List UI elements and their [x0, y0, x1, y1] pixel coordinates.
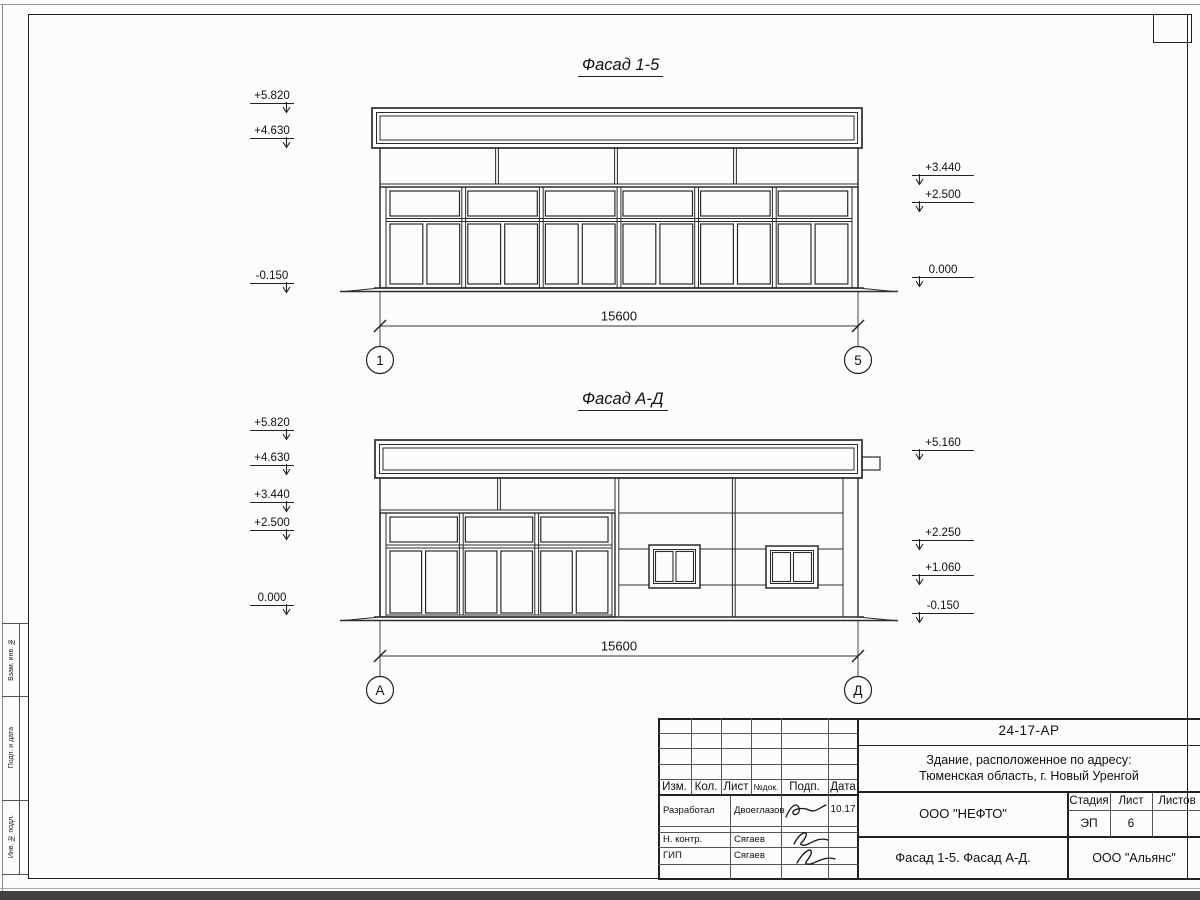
dimension-value: 15600: [601, 309, 637, 324]
sheet-number: 6: [1110, 810, 1152, 837]
facade-ad-title: Фасад А-Д: [578, 390, 668, 411]
elevation-mark: +3.440: [250, 488, 294, 503]
elevation-arrow-icon: [280, 137, 293, 150]
doc-number: 24-17-АР: [858, 718, 1200, 745]
elevation-arrow-icon: [280, 464, 293, 477]
margin-label-text: Взам. инв. №: [8, 638, 15, 681]
elevation-arrow-icon: [280, 102, 293, 115]
sheet-edge-bottom-line: [0, 888, 1200, 889]
axis-label-1: 1: [376, 353, 384, 368]
ground-line: [340, 288, 898, 292]
object-title-line2: Тюменская область, г. Новый Уренгой: [919, 769, 1139, 785]
elevation-mark: 0.000: [250, 591, 294, 606]
axis-label-d: Д: [853, 683, 862, 698]
drawing-title: Фасад 1-5. Фасад А-Д.: [858, 837, 1068, 880]
dimension: [367, 621, 872, 704]
elevation-mark: +1.060: [912, 561, 974, 576]
sheet-edge-top: [0, 4, 1200, 5]
elevation-mark: 0.000: [912, 263, 974, 278]
facade-1-5-title: Фасад 1-5: [578, 56, 663, 77]
margin-label-podp: Подп. и дата: [3, 696, 19, 800]
sign-band: [375, 440, 880, 478]
sheet-label: Лист: [1110, 792, 1152, 810]
elevation-arrow-icon: [913, 574, 926, 587]
dimension: [367, 292, 872, 374]
sign-band: [372, 108, 862, 148]
axis-label-a: А: [375, 683, 384, 698]
elevation-mark: +2.500: [912, 188, 974, 203]
curtain-wall: [380, 187, 858, 288]
elevation-arrow-icon: [280, 501, 293, 514]
elevation-arrow-icon: [913, 449, 926, 462]
name-syagaev-1: Сягаев: [731, 832, 784, 847]
elevation-arrow-icon: [913, 174, 926, 187]
role-razrabotal: Разработал: [660, 795, 731, 826]
sign-band-bracket: [862, 457, 880, 470]
window-2: [766, 546, 818, 588]
elevation-arrow-icon: [280, 529, 293, 542]
name-syagaev-2: Сягаев: [731, 847, 784, 864]
margin-label-text: Подп. и дата: [8, 727, 15, 768]
margin-label-vzam: Взам. инв. №: [3, 623, 19, 696]
elevation-mark: +4.630: [250, 451, 294, 466]
date-value: 10.17: [828, 795, 858, 826]
dimension-value: 15600: [601, 639, 637, 654]
role-gip: ГИП: [660, 847, 731, 864]
elevation-mark: +5.820: [250, 89, 294, 104]
elevation-mark: +4.630: [250, 124, 294, 139]
sheets-label: Листов: [1152, 792, 1200, 810]
fascia-band: [380, 148, 858, 187]
elevation-arrow-icon: [280, 429, 293, 442]
elevation-mark: +5.820: [250, 416, 294, 431]
drawing-sheet: Взам. инв. № Подп. и дата Инв. № подл. Ф…: [0, 0, 1200, 900]
col-podp: Подп.: [781, 779, 828, 795]
elevation-mark: +2.250: [912, 526, 974, 541]
elevation-mark: -0.150: [250, 269, 294, 284]
org-name: ООО "НЕФТО": [858, 792, 1068, 837]
stage-label: Стадия: [1068, 792, 1110, 810]
col-izm: Изм.: [658, 779, 691, 795]
margin-strip-line: [2, 874, 28, 875]
margin-label-inv: Инв. № подл.: [3, 800, 19, 874]
signature-icon: [793, 845, 839, 869]
corner-stamp-box: [1153, 14, 1192, 43]
paper-edge: [0, 891, 1200, 900]
elevation-arrow-icon: [913, 201, 926, 214]
facade-ad-drawing: 15600 А Д: [330, 430, 910, 720]
signature-icon: [783, 799, 829, 825]
elevation-arrow-icon: [913, 612, 926, 625]
elevation-mark: +3.440: [912, 161, 974, 176]
role-nkontr: Н. контр.: [660, 832, 731, 847]
curtain-wall: [380, 513, 615, 617]
col-list: Лист: [721, 779, 751, 795]
object-title-line1: Здание, расположенное по адресу:: [919, 753, 1139, 769]
elevation-arrow-icon: [913, 276, 926, 289]
contractor-name: ООО "Альянс": [1068, 837, 1200, 880]
elevation-mark: +5.160: [912, 436, 974, 451]
ground-line: [340, 617, 898, 621]
axis-label-5: 5: [854, 353, 862, 368]
margin-strip-line: [19, 623, 20, 874]
window-1: [649, 545, 700, 588]
col-data: Дата: [828, 779, 858, 795]
elevation-mark: +2.500: [250, 516, 294, 531]
elevation-arrow-icon: [280, 604, 293, 617]
facade-1-5-drawing: 15600 1 5: [330, 100, 910, 390]
col-ndok: №док.: [751, 779, 781, 795]
margin-label-text: Инв. № подл.: [8, 815, 15, 858]
elevation-arrow-icon: [913, 539, 926, 552]
col-kol: Кол.: [691, 779, 721, 795]
name-dvoeglazov: Двоеглазов: [731, 795, 784, 826]
object-title: Здание, расположенное по адресу: Тюменск…: [858, 745, 1200, 792]
stage-value: ЭП: [1068, 810, 1110, 837]
elevation-mark: -0.150: [912, 599, 974, 614]
elevation-arrow-icon: [280, 282, 293, 295]
